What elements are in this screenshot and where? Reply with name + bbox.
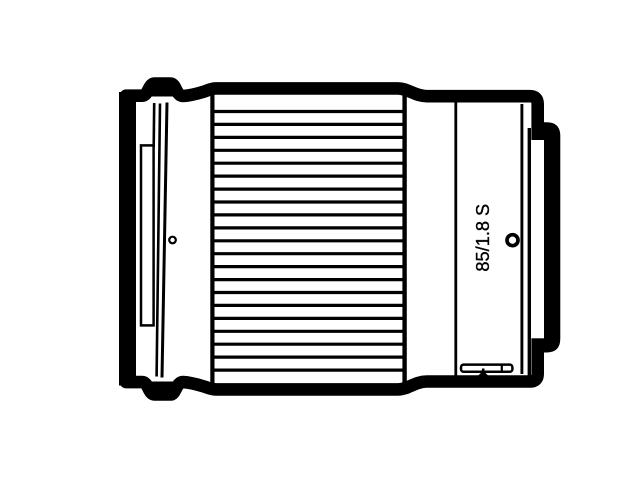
- svg-text:85/1.8 S: 85/1.8 S: [473, 204, 493, 272]
